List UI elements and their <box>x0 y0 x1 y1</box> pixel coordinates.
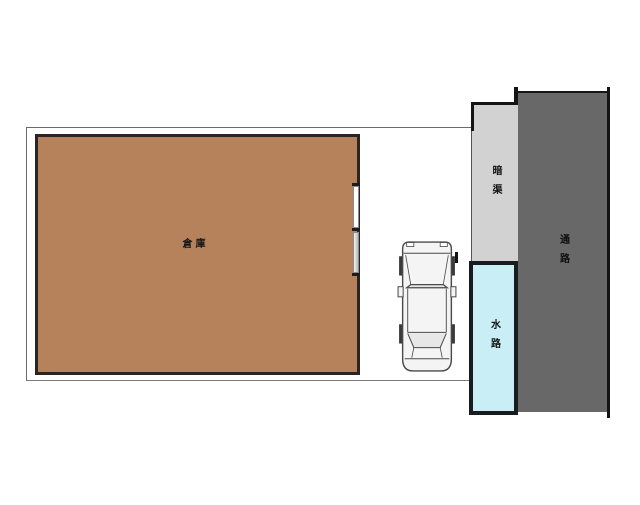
passage-label: 通路 <box>558 234 568 272</box>
warehouse-area: 倉庫 <box>35 134 360 375</box>
passage-area: 通路 <box>518 91 607 412</box>
passage-border-tick <box>514 87 518 104</box>
door-frame-tick <box>352 183 360 186</box>
waterway-area: 水路 <box>469 261 518 415</box>
car-icon <box>396 240 458 374</box>
door-frame-tick <box>352 273 360 276</box>
door-frame-tick <box>352 228 360 231</box>
culvert-area: 暗渠 <box>471 102 518 262</box>
warehouse-door-upper-panel <box>353 186 359 228</box>
culvert-label: 暗渠 <box>490 165 500 203</box>
passage-border-line <box>607 87 610 418</box>
site-plan: 倉庫 暗渠 水路 通路 <box>0 0 640 505</box>
culvert-border-tick <box>471 102 474 131</box>
waterway-label: 水路 <box>489 319 499 357</box>
warehouse-door-lower-panel <box>353 232 359 273</box>
warehouse-label: 倉庫 <box>183 235 209 250</box>
